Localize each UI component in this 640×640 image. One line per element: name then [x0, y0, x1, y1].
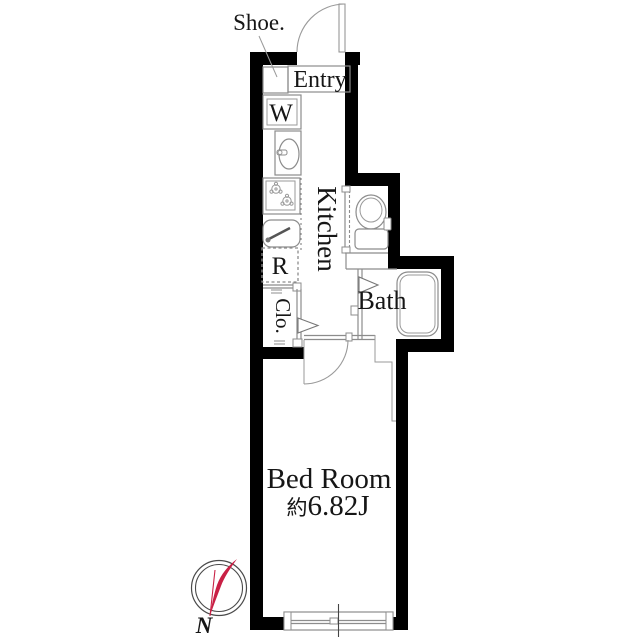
floorplan-canvas: N Shoe. Entry W Kitchen R Clo. Bath Bed …: [0, 0, 640, 640]
toilet-fixture: [355, 195, 391, 249]
pipe-space-outline: [375, 335, 396, 421]
stove: [263, 178, 300, 214]
bedroom-window: [284, 604, 393, 637]
bedroom-area-prefix: 約: [286, 496, 307, 520]
refrigerator-label: R: [272, 253, 289, 280]
washer-label: W: [269, 100, 293, 127]
window-center-latch: [330, 618, 338, 624]
bath-label: Bath: [357, 286, 406, 315]
wall-bottom-left: [250, 617, 284, 630]
closet-jamb-bottom: [293, 339, 302, 347]
compass-north-label: N: [195, 613, 214, 638]
compass-needle-tail: [210, 570, 215, 616]
shoe-label: Shoe.: [233, 10, 285, 35]
compass: N: [192, 559, 247, 638]
entry-door-swing-arc: [297, 4, 345, 52]
bedroom-door-swing-arc: [304, 340, 348, 384]
closet-label: Clo.: [271, 298, 295, 334]
bedroom-area-value: 6.82J: [307, 490, 369, 522]
toilet-tank: [355, 229, 388, 249]
wall-bedroom-right: [396, 339, 408, 630]
stove-inner: [266, 181, 295, 210]
toilet-flush-handle: [384, 218, 391, 230]
wall-bottom-right: [393, 617, 408, 630]
wall-top-left: [250, 52, 297, 65]
toilet-room: [342, 186, 391, 253]
wall-left: [250, 52, 263, 630]
closet-door-marker: [298, 318, 318, 333]
burner-icon: [281, 194, 293, 205]
entry-door: [297, 4, 345, 52]
faucet-icon: [267, 228, 290, 240]
kitchen-label: Kitchen: [312, 186, 342, 272]
entry-label: Entry: [293, 67, 346, 93]
wall-upper-right: [345, 52, 358, 173]
burner-icon: [270, 182, 282, 193]
wall-closet-south: [263, 347, 304, 359]
wall-bath-right: [441, 256, 454, 352]
entry-door-leaf: [339, 4, 345, 52]
bedroom-door: [304, 333, 375, 384]
washbasin: [275, 131, 301, 175]
kitchen-sink: [263, 220, 300, 247]
stove-outer: [263, 178, 300, 214]
faucet-base: [266, 238, 271, 243]
shoe-cabinet: [263, 67, 288, 93]
